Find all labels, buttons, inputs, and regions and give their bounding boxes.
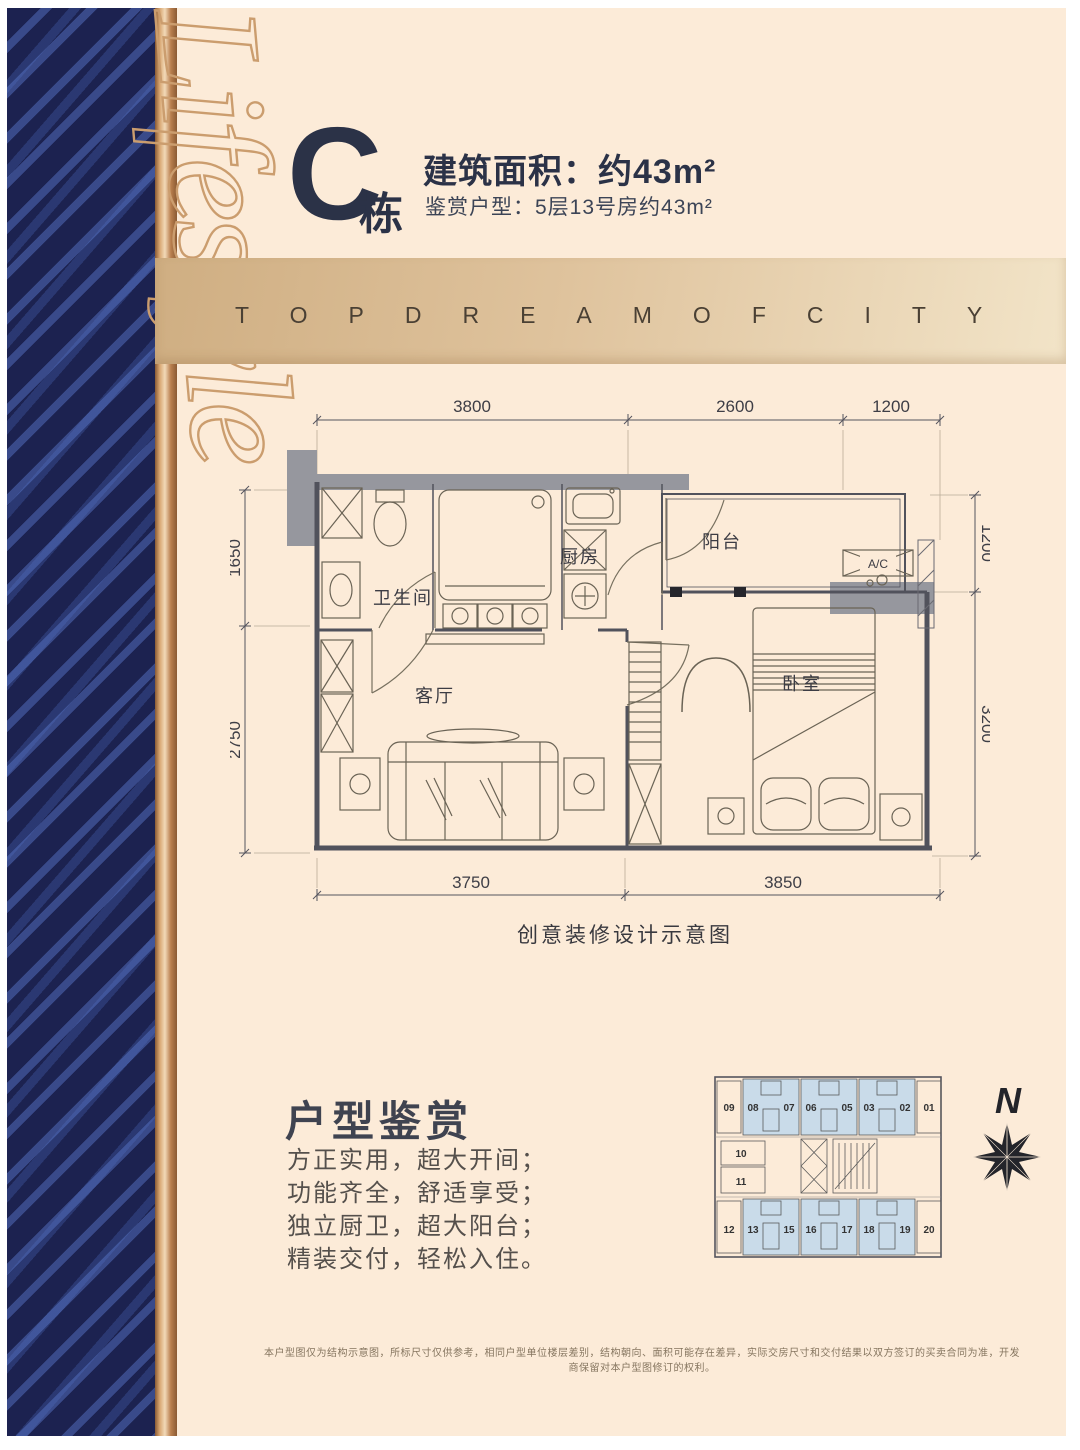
unit-16: 16 [805, 1225, 817, 1236]
furniture [321, 488, 922, 844]
unit-08: 08 [747, 1103, 759, 1114]
unit-15: 15 [783, 1225, 795, 1236]
dim-top-3: 1200 [872, 397, 910, 416]
unit-02: 02 [899, 1103, 911, 1114]
window-mark-1 [670, 587, 682, 597]
wardrobe-column [629, 642, 661, 844]
unit-05: 05 [841, 1103, 853, 1114]
poster-page: Lifestyle C 栋 建筑面积：约43m² 鉴赏户型：5层13号房约43m… [0, 0, 1080, 1450]
unit-17: 17 [841, 1225, 853, 1236]
label-balcony: 阳台 [702, 532, 742, 552]
living-furniture [321, 634, 604, 840]
area-title: 建筑面积：约43m² [423, 144, 716, 193]
highlight-line: 精装交付，轻松入住。 [287, 1243, 547, 1276]
unit-10: 10 [735, 1149, 747, 1160]
compass-rose-icon [970, 1120, 1044, 1194]
area-subtitle: 鉴赏户型：5层13号房约43m² [425, 191, 713, 221]
label-kitchen: 厨房 [560, 547, 600, 567]
unit-20: 20 [923, 1225, 935, 1236]
label-living: 客厅 [415, 686, 455, 706]
building-key-plan: 09 08 07 06 05 03 02 01 [713, 1073, 943, 1263]
interior-walls [317, 630, 627, 848]
wall-top [317, 474, 689, 490]
dimension-labels: 3800 2600 1200 1650 2750 1200 3200 3750 … [230, 397, 990, 892]
floorplan-drawing: 3800 2600 1200 1650 2750 1200 3200 3750 … [230, 390, 990, 960]
highlight-line: 方正实用，超大开间； [287, 1144, 547, 1177]
building-suffix: 栋 [359, 178, 403, 242]
banner-letters: TOPDREAMOFCITY [235, 302, 1023, 329]
dim-top-2: 2600 [716, 397, 754, 416]
unit-09: 09 [723, 1103, 735, 1114]
keyplan-mid-numbers: 10 11 [735, 1149, 747, 1188]
disclaimer-text: 本户型图仅为结构示意图，所标尺寸仅供参考，相同户型单位楼层差别，结构朝向、面积可… [262, 1344, 1022, 1374]
dim-right-1: 1200 [978, 524, 990, 562]
navy-stripe-band [7, 8, 155, 1436]
label-bathroom: 卫生间 [373, 588, 433, 608]
unit-11: 11 [736, 1177, 747, 1188]
highlights-lines: 方正实用，超大开间； 功能齐全，舒适享受； 独立厨卫，超大阳台； 精装交付，轻松… [287, 1144, 547, 1276]
bedroom-furniture [682, 608, 922, 840]
window-mark-2 [734, 587, 746, 597]
unit-06: 06 [805, 1103, 817, 1114]
dim-right-2: 3200 [978, 705, 990, 743]
wall-block-topleft [287, 450, 317, 546]
label-bedroom: 卧室 [782, 674, 822, 694]
top-dream-banner: TOPDREAMOFCITY [155, 258, 1066, 364]
gold-trim-bar [155, 8, 177, 1436]
unit-07: 07 [783, 1103, 795, 1114]
dim-bottom-1: 3750 [452, 873, 490, 892]
dim-left-2: 2750 [230, 721, 244, 759]
unit-01: 01 [923, 1103, 935, 1114]
dim-left-1: 1650 [230, 539, 244, 577]
unit-03: 03 [863, 1103, 875, 1114]
unit-19: 19 [899, 1225, 911, 1236]
unit-13: 13 [747, 1225, 759, 1236]
unit-12: 12 [723, 1225, 735, 1236]
shower-room [439, 490, 551, 628]
keyplan-core [715, 1137, 941, 1197]
highlights-title: 户型鉴赏 [285, 1088, 473, 1149]
dim-top-1: 3800 [453, 397, 491, 416]
label-ac: A/C [868, 557, 888, 571]
highlight-line: 功能齐全，舒适享受； [287, 1177, 547, 1210]
north-label: N [995, 1080, 1021, 1122]
poster-background: Lifestyle C 栋 建筑面积：约43m² 鉴赏户型：5层13号房约43m… [7, 8, 1066, 1436]
highlight-line: 独立厨卫，超大阳台； [287, 1210, 547, 1243]
plan-caption: 创意装修设计示意图 [517, 924, 733, 947]
unit-18: 18 [863, 1225, 875, 1236]
dim-bottom-2: 3850 [764, 873, 802, 892]
walls [287, 450, 934, 850]
